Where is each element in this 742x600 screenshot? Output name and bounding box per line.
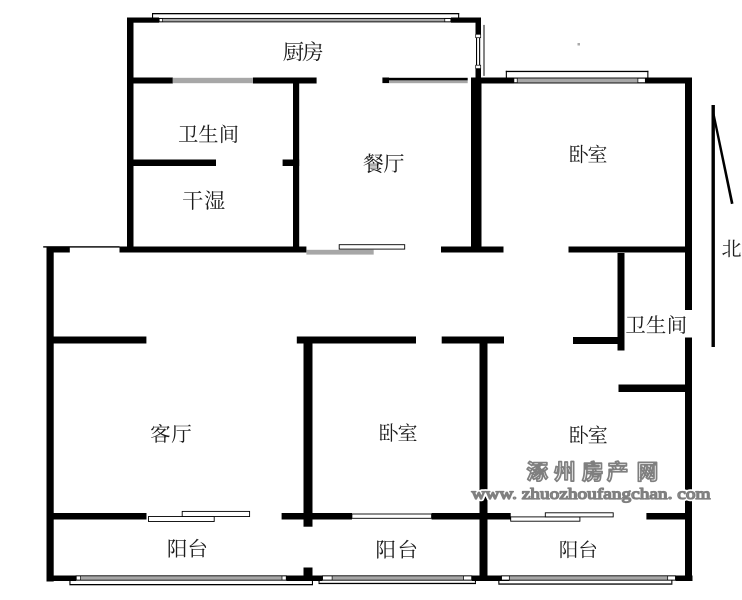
svg-text:www. zhuozhoufangchan. com: www. zhuozhoufangchan. com — [472, 486, 712, 503]
